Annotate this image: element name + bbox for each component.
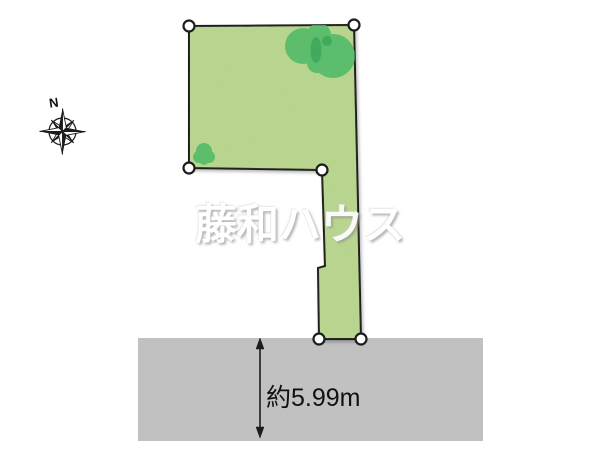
vertex-marker [184, 21, 195, 32]
north-label: N [48, 95, 59, 111]
vertex-marker [356, 334, 367, 345]
plot-map-canvas: N 藤和ハウス 約5.99m [0, 0, 600, 450]
vertex-marker [184, 163, 195, 174]
dimension-label: 約5.99m [266, 378, 360, 414]
vertex-marker [317, 165, 328, 176]
vertex-marker [349, 20, 360, 31]
vertex-marker [314, 334, 325, 345]
compass-rose-icon: N [40, 95, 86, 155]
